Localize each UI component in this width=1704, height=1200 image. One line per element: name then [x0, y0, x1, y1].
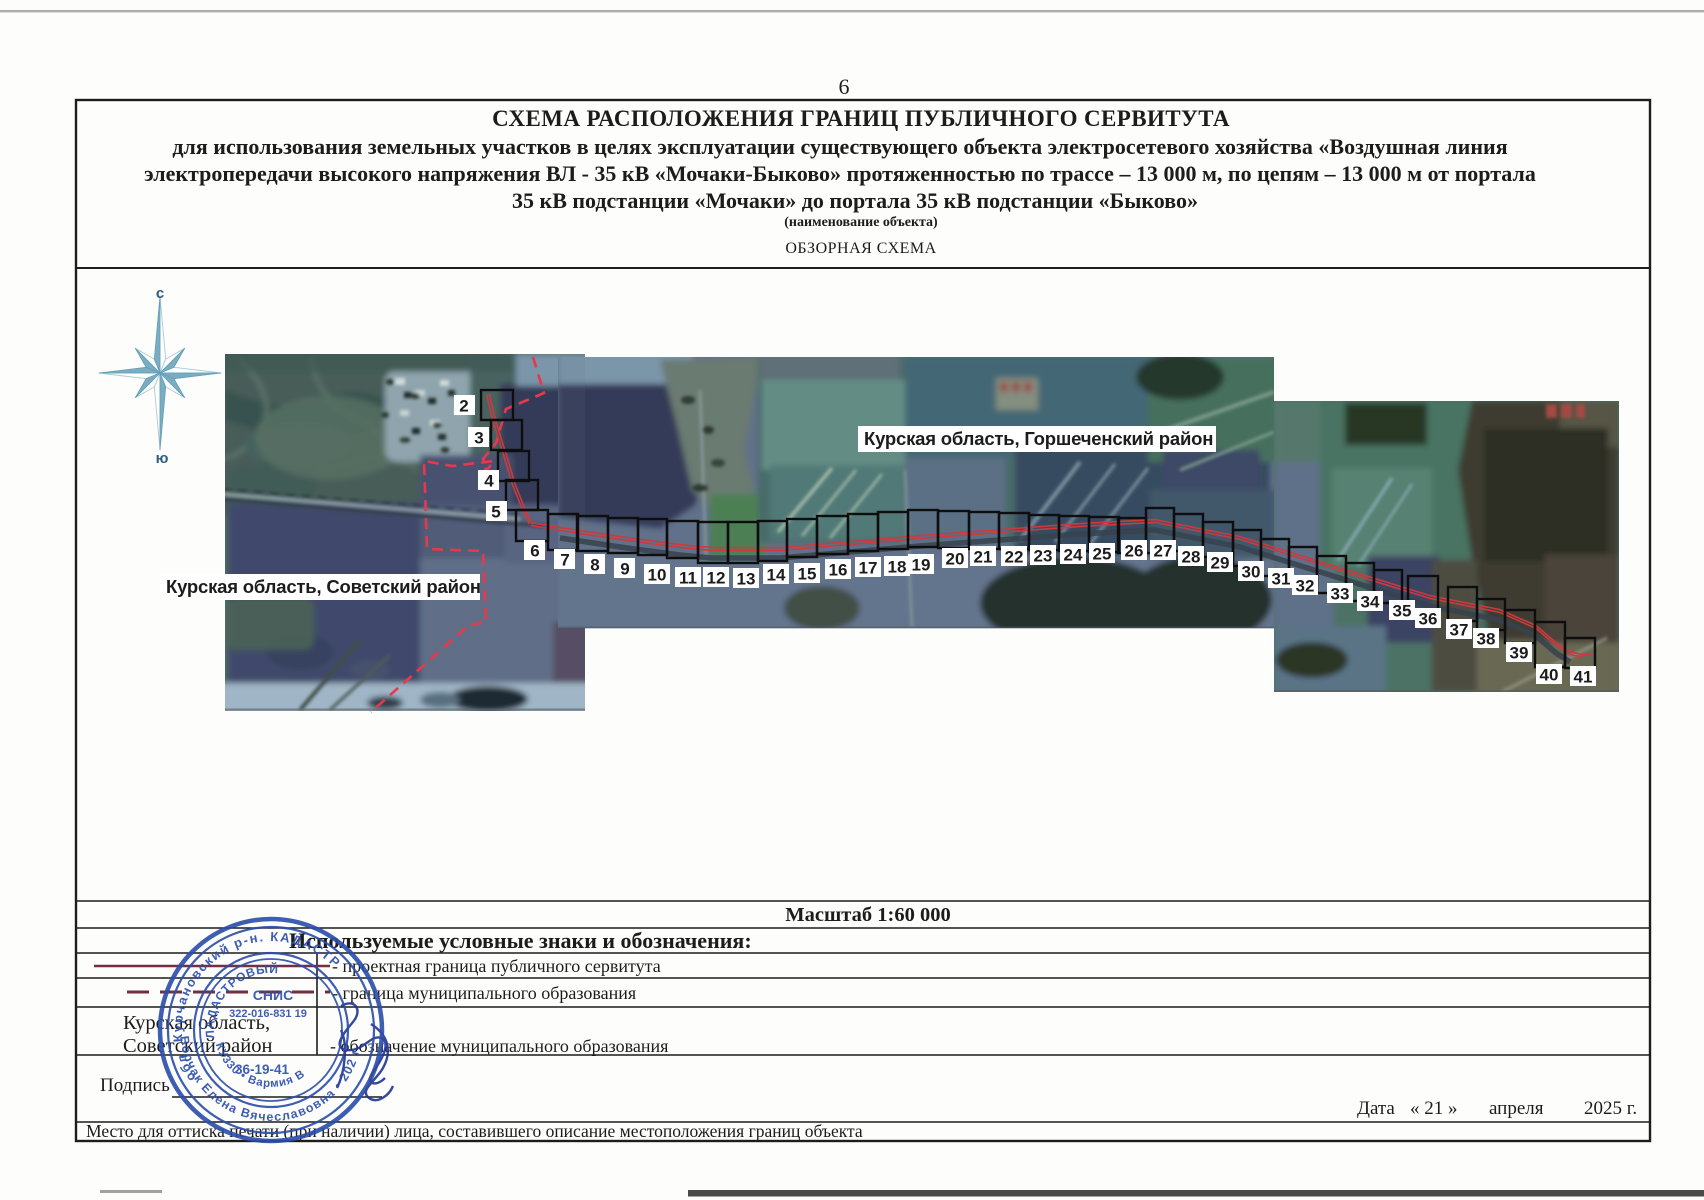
- svg-text:для использования земельных уч: для использования земельных участков в ц…: [172, 134, 1507, 159]
- svg-text:9: 9: [620, 560, 629, 579]
- svg-text:36-19-41: 36-19-41: [235, 1062, 290, 1077]
- svg-text:« 21 »: « 21 »: [1410, 1098, 1458, 1119]
- svg-text:28: 28: [1182, 548, 1201, 567]
- svg-text:2: 2: [459, 397, 468, 416]
- svg-text:32: 32: [1296, 577, 1315, 596]
- svg-text:18: 18: [888, 558, 907, 577]
- svg-text:24: 24: [1064, 546, 1083, 565]
- svg-text:29: 29: [1211, 554, 1230, 573]
- svg-text:38: 38: [1477, 630, 1496, 649]
- svg-text:40: 40: [1540, 666, 1559, 685]
- svg-text:Курская область, Горшеченский: Курская область, Горшеченский район: [864, 428, 1213, 449]
- svg-text:апреля: апреля: [1489, 1098, 1544, 1119]
- svg-text:СХЕМА РАСПОЛОЖЕНИЯ ГРАНИЦ ПУБЛ: СХЕМА РАСПОЛОЖЕНИЯ ГРАНИЦ ПУБЛИЧНОГО СЕР…: [492, 106, 1230, 131]
- svg-text:19: 19: [912, 556, 931, 575]
- svg-text:6: 6: [530, 542, 539, 561]
- svg-text:17: 17: [859, 559, 878, 578]
- svg-text:(наименование объекта): (наименование объекта): [784, 215, 938, 230]
- svg-text:37: 37: [1450, 621, 1469, 640]
- svg-text:27: 27: [1154, 542, 1173, 561]
- svg-text:4: 4: [484, 472, 494, 491]
- svg-text:7: 7: [560, 551, 569, 570]
- svg-text:ОБЗОРНАЯ СХЕМА: ОБЗОРНАЯ СХЕМА: [785, 240, 936, 257]
- svg-text:Место для оттиска печати (при: Место для оттиска печати (при наличии) л…: [86, 1121, 863, 1141]
- svg-text:25: 25: [1093, 545, 1112, 564]
- svg-text:Масштаб 1:60 000: Масштаб 1:60 000: [785, 904, 950, 926]
- svg-text:Используемые условные знаки и: Используемые условные знаки и обозначени…: [289, 928, 752, 953]
- svg-text:36: 36: [1419, 610, 1438, 629]
- svg-text:22: 22: [1005, 548, 1024, 567]
- svg-text:39: 39: [1510, 644, 1529, 663]
- svg-text:Дата: Дата: [1357, 1098, 1395, 1119]
- svg-text:Подпись: Подпись: [100, 1075, 170, 1096]
- svg-text:электропередачи высокого напря: электропередачи высокого напряжения ВЛ -…: [144, 161, 1536, 186]
- svg-text:СНИС: СНИС: [253, 987, 293, 1003]
- svg-text:8: 8: [590, 556, 599, 575]
- svg-text:21: 21: [974, 548, 993, 567]
- svg-text:33: 33: [1331, 585, 1350, 604]
- svg-text:35: 35: [1393, 602, 1412, 621]
- svg-text:6: 6: [839, 74, 850, 99]
- svg-text:15: 15: [798, 565, 817, 584]
- svg-text:ю: ю: [156, 450, 169, 467]
- svg-text:20: 20: [946, 550, 965, 569]
- svg-text:35 кВ подстанции «Мочаки» до п: 35 кВ подстанции «Мочаки» до портала 35 …: [512, 188, 1198, 213]
- svg-text:2025 г.: 2025 г.: [1584, 1098, 1637, 1119]
- svg-text:322-016-831 19: 322-016-831 19: [229, 1008, 307, 1020]
- svg-text:23: 23: [1034, 547, 1053, 566]
- svg-text:10: 10: [648, 566, 667, 585]
- svg-text:с: с: [156, 285, 164, 302]
- svg-text:30: 30: [1242, 563, 1261, 582]
- svg-text:13: 13: [737, 570, 756, 589]
- svg-text:26: 26: [1125, 542, 1144, 561]
- svg-text:12: 12: [707, 569, 726, 588]
- svg-text:- проектная граница публичного: - проектная граница публичного сервитута: [332, 956, 661, 976]
- svg-text:3: 3: [474, 429, 483, 448]
- svg-text:31: 31: [1272, 570, 1291, 589]
- svg-text:Курская область, Советский рай: Курская область, Советский район: [166, 576, 481, 597]
- svg-text:11: 11: [679, 569, 697, 588]
- svg-text:41: 41: [1574, 668, 1593, 687]
- svg-text:14: 14: [767, 566, 786, 585]
- svg-text:5: 5: [491, 503, 500, 522]
- svg-text:16: 16: [829, 561, 848, 580]
- svg-text:34: 34: [1361, 593, 1380, 612]
